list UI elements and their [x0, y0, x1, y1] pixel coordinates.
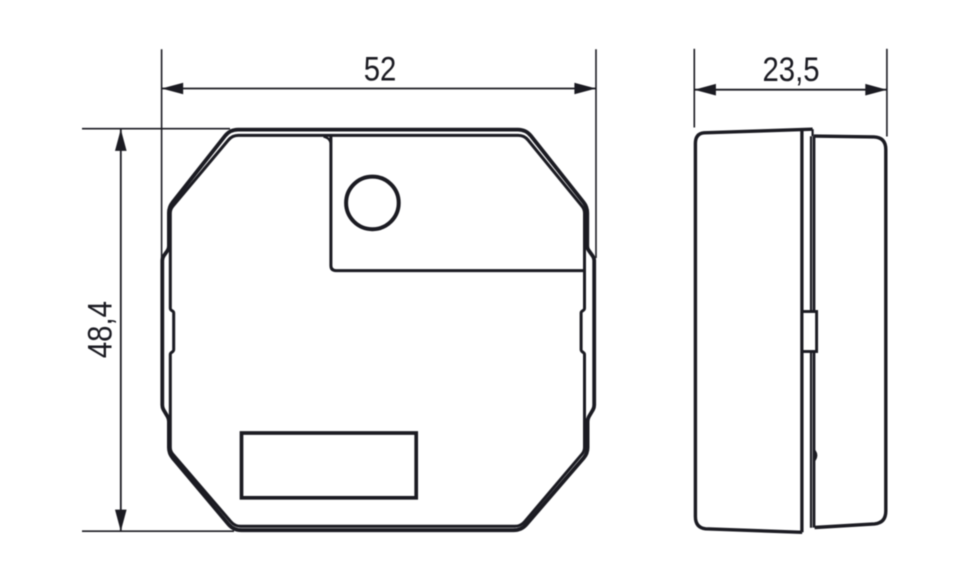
svg-text:52: 52: [364, 49, 397, 88]
svg-text:48,4: 48,4: [80, 301, 119, 358]
svg-text:23,5: 23,5: [762, 50, 819, 89]
